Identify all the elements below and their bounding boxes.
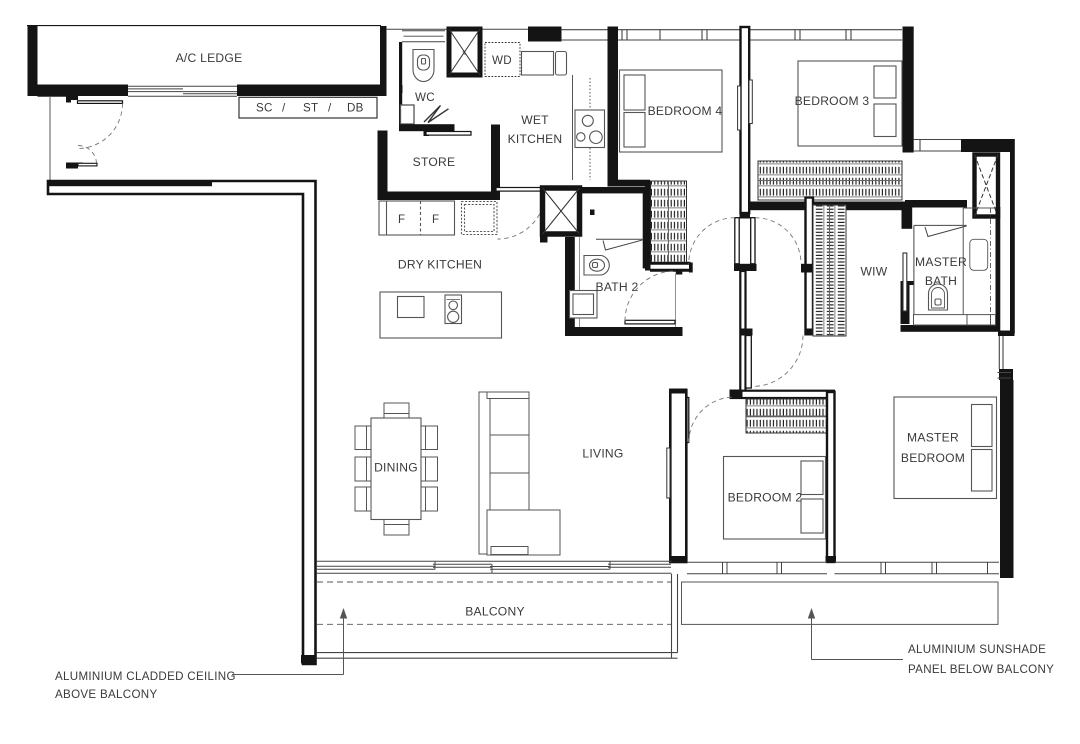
svg-text:ABOVE BALCONY: ABOVE BALCONY [55,688,157,701]
svg-text:KITCHEN: KITCHEN [508,132,563,146]
svg-text:F: F [398,213,405,226]
svg-text:STORE: STORE [413,155,456,169]
svg-text:F: F [432,213,439,226]
svg-text:PANEL BELOW BALCONY: PANEL BELOW BALCONY [908,663,1054,676]
svg-text:BATH: BATH [925,274,957,288]
svg-text:WET: WET [521,113,549,127]
svg-text:MASTER: MASTER [915,255,967,269]
svg-text:x: x [462,50,466,57]
svg-text:BEDROOM 2: BEDROOM 2 [728,491,803,505]
svg-text:/: / [282,102,286,115]
svg-text:/: / [328,102,332,115]
svg-text:BEDROOM 4: BEDROOM 4 [648,104,723,118]
svg-text:DINING: DINING [374,461,418,475]
svg-text:WD: WD [492,54,512,67]
svg-text:ST: ST [303,102,318,115]
svg-text:BEDROOM: BEDROOM [901,451,965,465]
svg-text:ALUMINIUM CLADDED CEILING: ALUMINIUM CLADDED CEILING [55,670,236,683]
svg-text:ALUMINIUM SUNSHADE: ALUMINIUM SUNSHADE [908,643,1046,656]
svg-text:LIVING: LIVING [582,447,623,461]
svg-text:DB: DB [347,102,364,115]
svg-text:MASTER: MASTER [907,431,959,445]
svg-text:BALCONY: BALCONY [465,605,525,619]
svg-text:WIW: WIW [861,265,888,279]
svg-text:SC: SC [256,102,273,115]
svg-text:WC: WC [415,91,435,104]
svg-text:BATH 2: BATH 2 [596,280,639,294]
svg-text:DRY KITCHEN: DRY KITCHEN [398,258,482,272]
svg-text:BEDROOM 3: BEDROOM 3 [795,94,870,108]
svg-text:A/C LEDGE: A/C LEDGE [176,51,243,65]
